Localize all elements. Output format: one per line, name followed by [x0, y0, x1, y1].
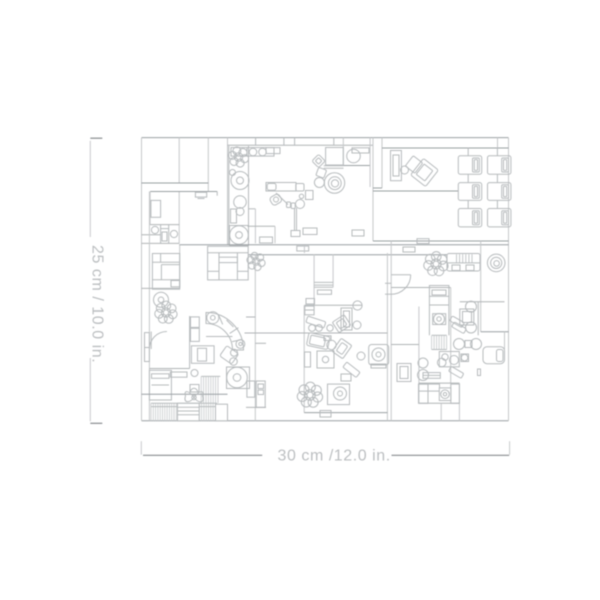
svg-text:25 cm / 10.0 in.: 25 cm / 10.0 in.: [89, 245, 106, 363]
svg-text:30 cm /12.0 in.: 30 cm /12.0 in.: [278, 448, 391, 465]
